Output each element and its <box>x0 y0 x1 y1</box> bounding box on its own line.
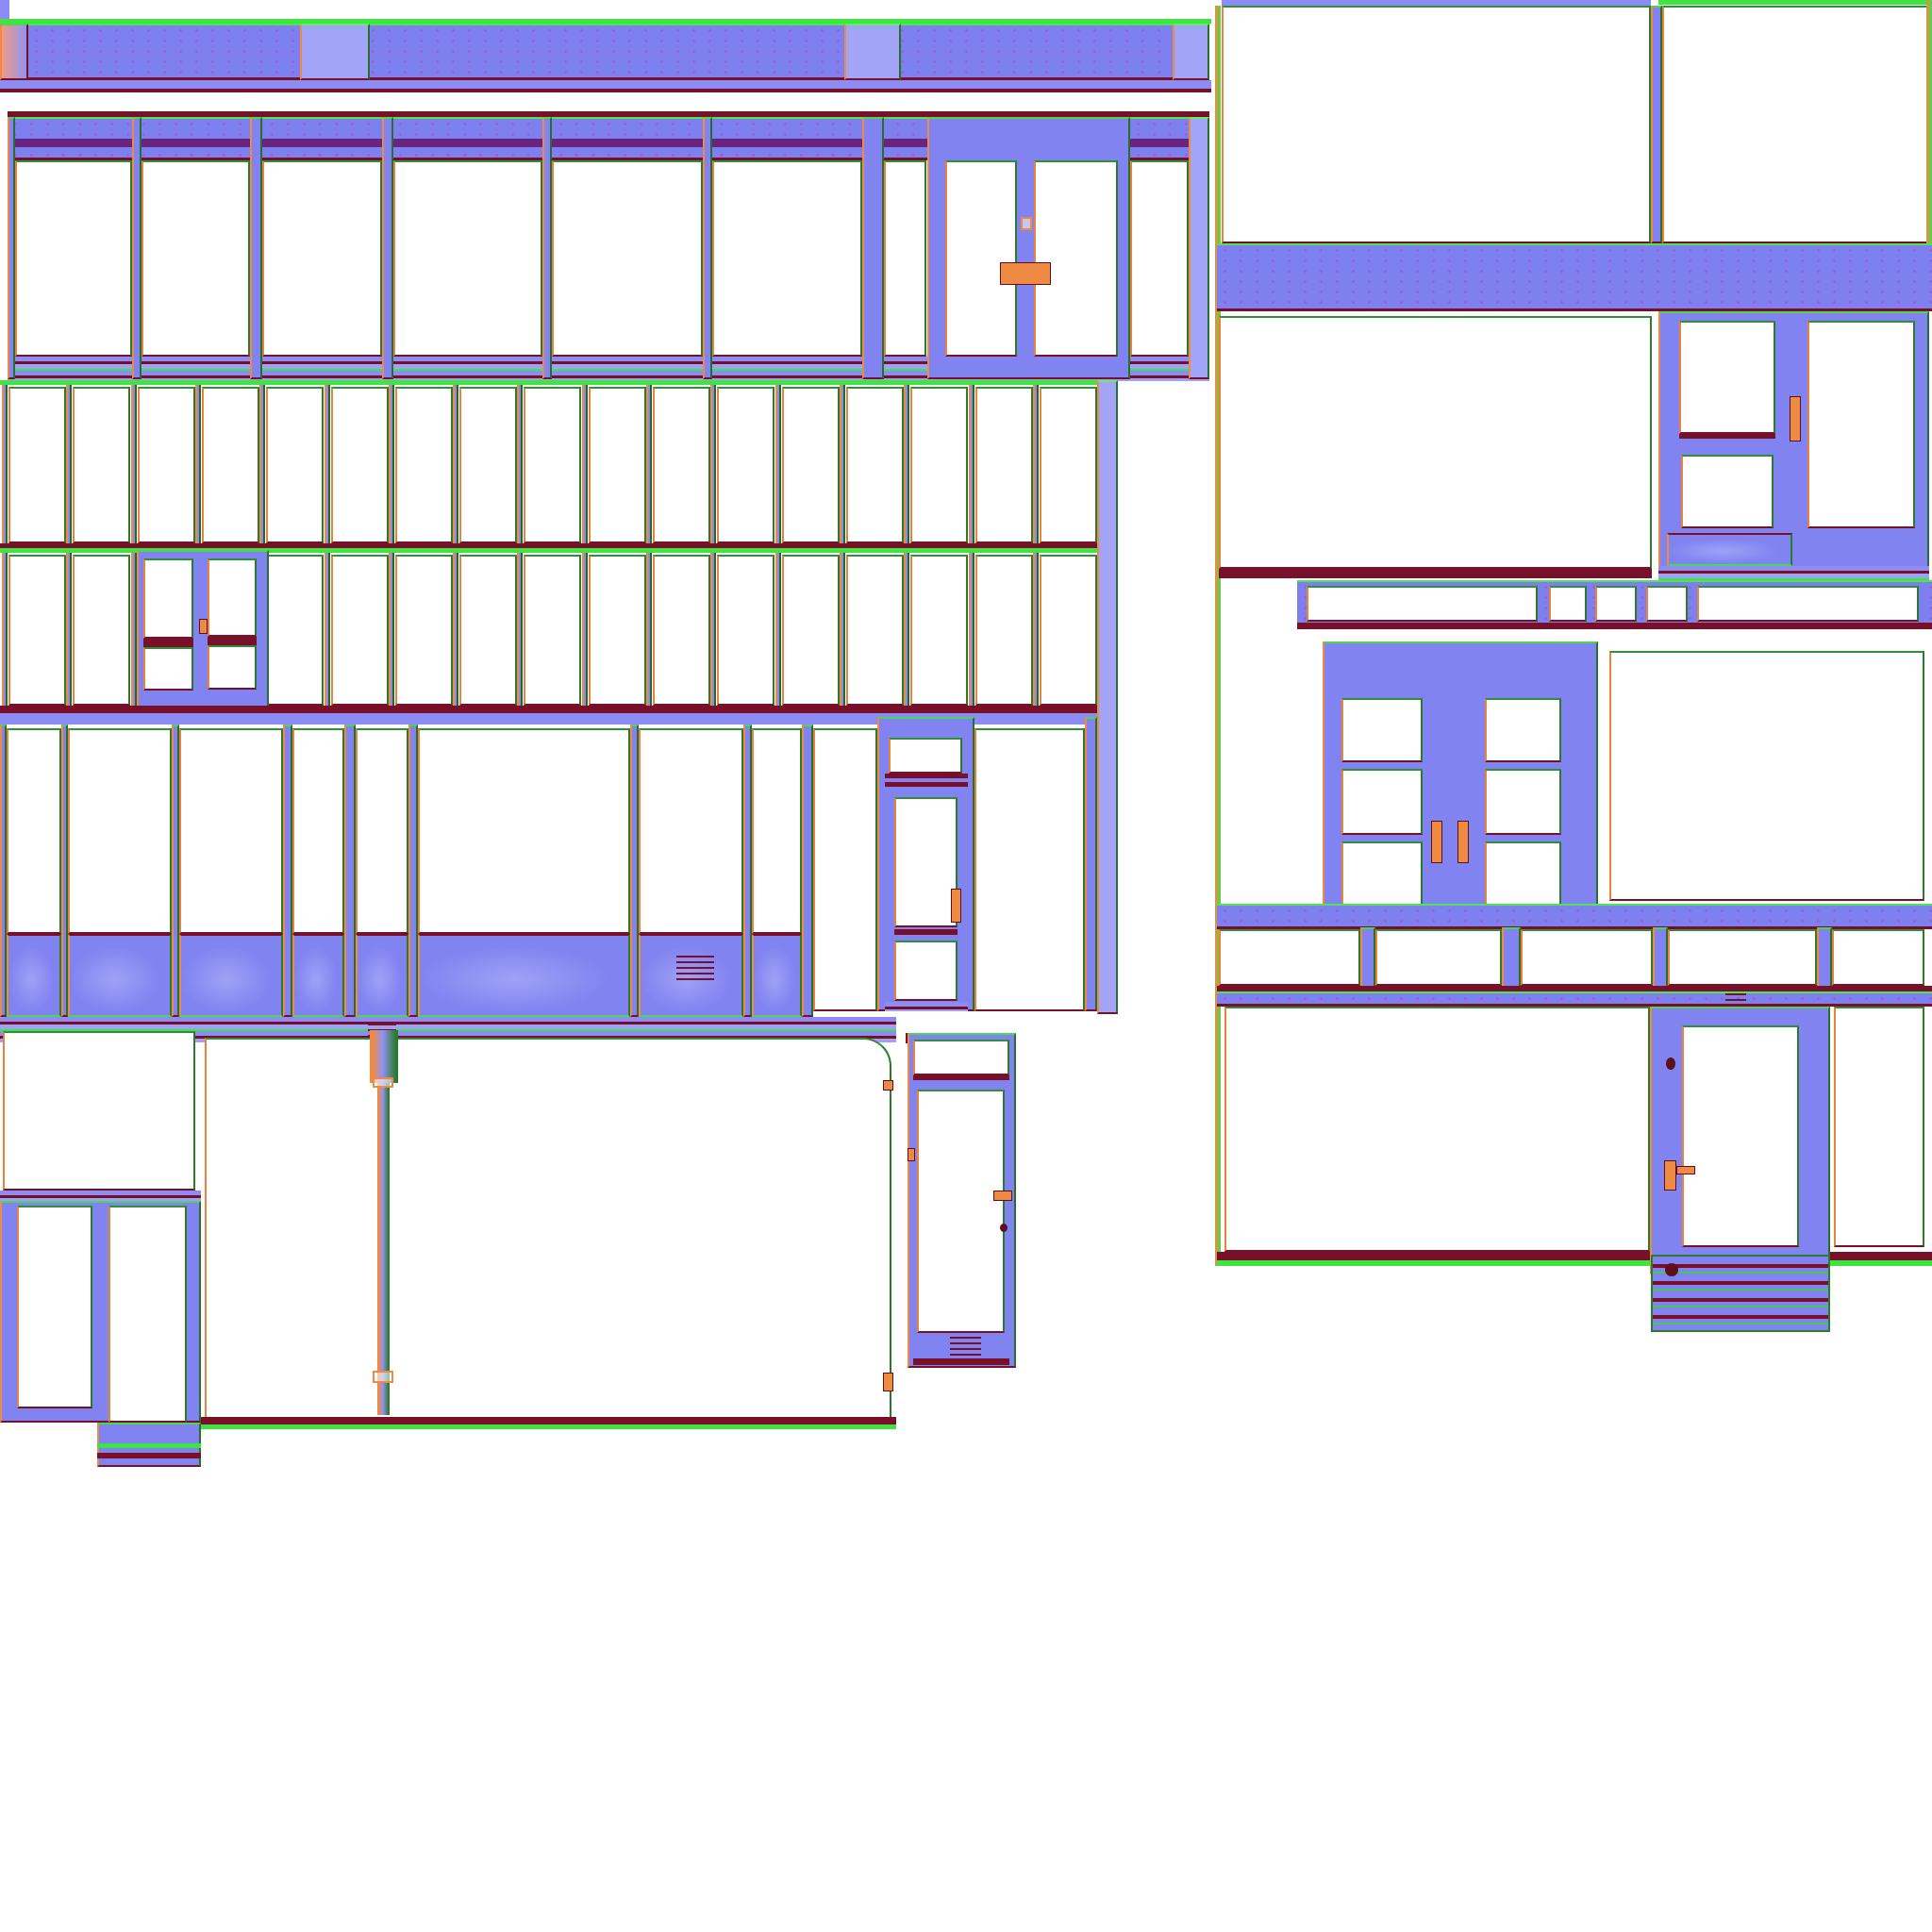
shop-window <box>712 160 862 357</box>
transom-line <box>913 1075 1009 1080</box>
rb-band3 <box>1217 991 1932 1007</box>
step-line <box>97 1453 201 1458</box>
rb-shopfront <box>1224 1007 1650 1252</box>
window-mullion <box>195 385 201 545</box>
shop-window <box>292 728 344 934</box>
window-mullion <box>453 385 458 545</box>
transom-bar <box>885 774 968 778</box>
window-glass <box>910 387 968 543</box>
door-rail <box>894 929 958 935</box>
spandrel-panel <box>7 934 61 1017</box>
window-mullion <box>517 385 523 545</box>
door-handle <box>951 889 961 923</box>
spandrel-panel <box>292 934 344 1017</box>
window-glass <box>524 387 581 543</box>
balcony-window-lower <box>143 647 193 691</box>
transom-window <box>1646 586 1688 622</box>
window-mullion <box>66 553 72 709</box>
window-glass <box>653 387 710 543</box>
window-mullion <box>710 553 716 709</box>
door-hinge <box>908 1148 915 1161</box>
window-mullion <box>904 553 909 709</box>
shop-window <box>142 160 250 357</box>
window-mullion <box>131 385 137 545</box>
rb-top-line-green <box>1658 0 1932 5</box>
window-mullion <box>131 553 137 709</box>
window-glass <box>589 555 646 706</box>
dd-handle <box>1431 821 1442 863</box>
downpipe-flare <box>370 1030 398 1083</box>
window-mullion <box>2 385 8 545</box>
window-mullion <box>646 553 652 709</box>
entrance-transom <box>889 738 962 774</box>
rb-window-glass <box>1521 929 1653 986</box>
storefront2-mullion <box>283 724 292 1017</box>
rb-right-edge <box>1926 0 1932 283</box>
spandrel-panel <box>418 934 630 1017</box>
window-mullion <box>1033 385 1039 545</box>
fascia-under-strip <box>0 80 1211 89</box>
door-glass-lower <box>894 941 958 1001</box>
door-hinge-detail <box>1021 217 1032 230</box>
window-mullion <box>1033 553 1039 709</box>
shop-window <box>15 160 132 357</box>
balcony-rail <box>143 639 193 647</box>
storefront2-mullion <box>1085 717 1097 1011</box>
window-glass <box>846 387 904 543</box>
storefront2-mullion <box>630 724 639 1017</box>
storefront1-mullion <box>542 117 552 379</box>
lower-door-glass <box>108 1206 187 1423</box>
fascia-divider <box>300 24 370 80</box>
transom-bar <box>885 782 968 787</box>
window-glass <box>73 387 130 543</box>
rb-door-opening <box>1682 1025 1799 1247</box>
window-mullion <box>2 553 8 709</box>
spandrel-dots <box>676 956 714 980</box>
fascia-cap-left <box>0 24 28 80</box>
window-glass <box>459 387 517 543</box>
rb-band <box>1217 243 1932 311</box>
dd-glass <box>1485 841 1561 908</box>
shop-window <box>552 160 703 357</box>
fascia-under-line <box>0 89 1211 92</box>
window-mullion <box>775 385 781 545</box>
dd-glass <box>1341 698 1423 762</box>
window-mullion <box>710 385 716 545</box>
door-push-bar <box>1000 262 1051 285</box>
rb-door-panel <box>1609 651 1924 901</box>
rb-unit-spandrel <box>1667 533 1792 566</box>
window-sill-line <box>0 380 1097 385</box>
window-glass <box>73 555 130 706</box>
rb-window-glass <box>1375 929 1502 986</box>
door-glass <box>945 160 1017 357</box>
storefront2-mullion <box>743 724 752 1017</box>
dd-glass <box>1341 841 1423 908</box>
window-glass <box>1040 387 1097 543</box>
lower-panel <box>3 1031 195 1191</box>
window-mullion <box>582 553 588 709</box>
window-glass <box>266 555 324 706</box>
window-mullion <box>969 553 974 709</box>
window-mullion <box>840 385 845 545</box>
transom-window <box>1595 586 1637 622</box>
rb-window-mullion <box>1360 927 1375 988</box>
window-glass <box>717 555 774 706</box>
window-mullion <box>389 553 394 709</box>
step-line <box>97 1443 201 1448</box>
window-glass <box>975 555 1033 706</box>
window-mullion <box>969 385 974 545</box>
rb-bollard <box>1665 1263 1678 1276</box>
rb-mullion <box>1651 6 1662 243</box>
balcony-door-lower <box>208 645 257 690</box>
balcony-rail <box>208 637 257 645</box>
rb-door-lever <box>1676 1166 1695 1174</box>
shop-window <box>884 160 926 357</box>
window-glass <box>653 555 710 706</box>
rb-transom-line <box>1297 623 1932 628</box>
window-glass <box>8 555 66 706</box>
shop-window <box>418 728 630 934</box>
window-glass <box>459 555 517 706</box>
window-glass <box>266 387 324 543</box>
ground-line <box>201 1417 896 1424</box>
shop-window <box>393 160 542 357</box>
lower-divider <box>0 1191 201 1201</box>
door-threshold <box>885 1002 968 1011</box>
balcony-door-glass <box>208 558 257 637</box>
window-glass <box>910 555 968 706</box>
window-mullion <box>840 553 845 709</box>
shop-window <box>639 728 743 934</box>
window-glass <box>717 387 774 543</box>
storefront2-mullion <box>408 724 418 1017</box>
window-glass <box>782 555 840 706</box>
window-mullion <box>259 385 265 545</box>
rb-band2 <box>1217 904 1932 929</box>
door-lever <box>993 1191 1012 1201</box>
downpipe <box>377 1083 390 1415</box>
rb-window-mullion <box>1653 927 1668 988</box>
window-mullion <box>582 385 588 545</box>
storefront1-mullion <box>132 117 142 379</box>
door-glass <box>1034 160 1118 357</box>
transom-window <box>1307 586 1538 622</box>
storefront2-mullion <box>802 724 813 1017</box>
rb-unit-handle <box>1790 396 1801 441</box>
shop-window <box>356 728 408 934</box>
transom-window <box>1549 586 1587 622</box>
transom-window <box>1697 586 1919 622</box>
fascia-cap-right <box>1173 24 1209 80</box>
rb-unit-pane-lower <box>1681 455 1774 528</box>
storefront1-mullion <box>250 117 262 379</box>
ground-line <box>201 1424 896 1429</box>
window-mullion <box>325 385 330 545</box>
window-mullion <box>66 385 72 545</box>
balcony-window <box>143 558 193 639</box>
storefront1-closure <box>1189 117 1209 379</box>
spandrel-panel <box>752 934 802 1017</box>
shop-window-tall <box>813 728 877 1011</box>
spandrel-panel <box>356 934 408 1017</box>
storefront2-mullion <box>344 724 356 1017</box>
shop-window <box>7 728 61 934</box>
rb-panel <box>1662 6 1928 243</box>
dd-glass <box>1485 698 1561 762</box>
pipe-clamp <box>373 1077 393 1088</box>
rb-unit-pane <box>1679 321 1775 434</box>
pipe-clamp <box>373 1371 393 1383</box>
rb-vent-grille <box>1725 988 1746 1005</box>
latch <box>883 1373 893 1391</box>
shop-window <box>68 728 172 934</box>
lower-door-pane <box>917 1090 1005 1333</box>
rb-peephole <box>1666 1058 1675 1070</box>
dd-glass <box>1341 769 1423 835</box>
window-mullion <box>517 553 523 709</box>
dd-handle <box>1457 821 1469 863</box>
rb-window-glass <box>1668 929 1817 986</box>
pilaster-right <box>1097 380 1118 1014</box>
window-glass <box>524 555 581 706</box>
storefront2-mullion <box>61 724 68 1017</box>
window-glass <box>395 387 453 543</box>
window-glass <box>589 387 646 543</box>
shop-window <box>262 160 382 357</box>
shop-window <box>752 728 802 934</box>
storefront1-pilaster <box>8 117 15 379</box>
lower-door-transom <box>913 1040 1009 1075</box>
rb-window-mullion <box>1502 927 1521 988</box>
storefront1-mullion <box>703 117 712 379</box>
normal-map-texture-canvas <box>0 0 1932 1932</box>
fascia-band <box>28 24 1173 80</box>
window-mullion <box>904 385 909 545</box>
window-glass <box>331 387 389 543</box>
window-row-line <box>0 706 1097 713</box>
rb-left-edge <box>1215 6 1221 1266</box>
window-glass <box>782 387 840 543</box>
rb-unit-bar <box>1679 434 1775 439</box>
spandrel-panel <box>68 934 172 1017</box>
window-glass <box>202 387 259 543</box>
rb-unit-door <box>1807 321 1915 528</box>
texture-corner-bit <box>0 0 9 21</box>
shop-window <box>179 728 283 934</box>
window-mullion <box>325 553 330 709</box>
rb-panel <box>1222 6 1651 243</box>
shopfront-large <box>205 1038 891 1420</box>
window-mullion <box>389 385 394 545</box>
window-glass <box>975 387 1033 543</box>
window-mullion <box>453 553 458 709</box>
shop-window-tall <box>974 728 1085 1011</box>
shop-window <box>1130 160 1189 357</box>
rb-entrance-steps <box>1651 1255 1830 1332</box>
door-bottom-line <box>913 1358 1009 1365</box>
door-glass <box>894 797 958 927</box>
storefront2-mullion <box>172 724 179 1017</box>
window-glass <box>8 387 66 543</box>
rb-door-handle <box>1664 1160 1676 1191</box>
window-glass <box>846 555 904 706</box>
rb-window-glass <box>1832 929 1924 986</box>
rb-window-glass <box>1219 929 1360 986</box>
keyhole <box>1000 1224 1008 1232</box>
rb-window-mullion <box>1817 927 1832 988</box>
rb-panel2-edge <box>1219 569 1652 578</box>
latch <box>883 1080 893 1091</box>
fascia-divider <box>844 24 901 80</box>
balcony-handle <box>199 619 208 634</box>
rb-panel2 <box>1219 316 1652 569</box>
lower-window <box>17 1206 92 1408</box>
storefront1-mullion <box>382 117 393 379</box>
rb-shopfront-right <box>1834 1007 1924 1247</box>
spandrel-panel <box>179 934 283 1017</box>
window-glass <box>1040 555 1097 706</box>
storefront1-mullion <box>862 117 884 379</box>
storefront2-pilaster <box>0 724 7 1017</box>
window-glass <box>395 555 453 706</box>
window-glass <box>331 555 389 706</box>
window-glass <box>138 387 195 543</box>
window-mullion <box>646 385 652 545</box>
window-mullion <box>775 553 781 709</box>
dd-glass <box>1485 769 1561 835</box>
